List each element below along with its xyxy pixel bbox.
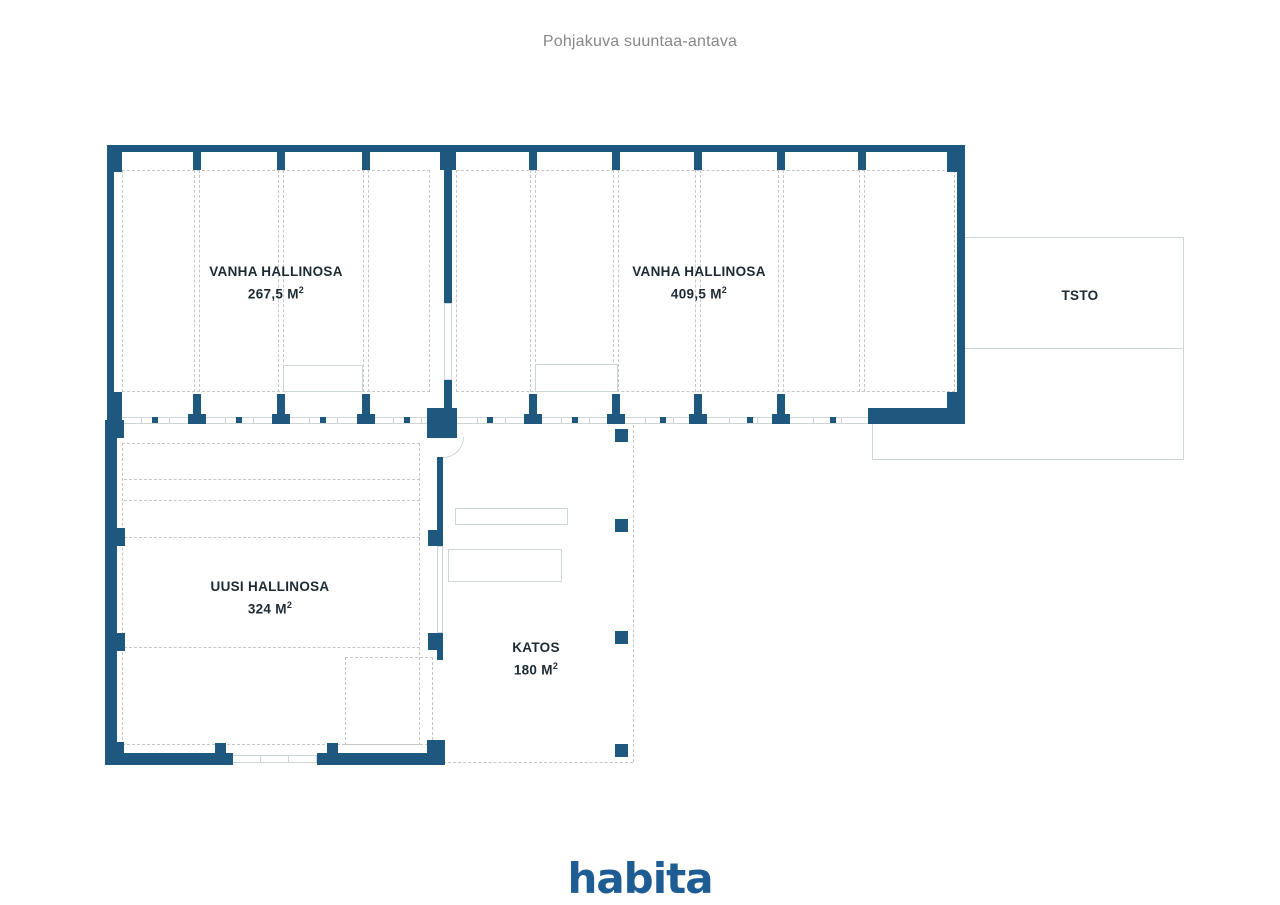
wall-segment [320,417,326,423]
wall-segment [487,417,493,423]
wall-segment [529,152,537,170]
wall-segment [272,414,290,424]
wall-segment [957,145,965,420]
wall-segment [437,650,443,660]
wall-segment [327,743,338,753]
room-area-sup: 2 [553,661,558,671]
wall-segment [615,631,628,644]
room-name: VANHA HALLINOSA [209,262,343,281]
room-area: 324 M2 [211,596,330,619]
window-opening [535,364,618,392]
column-grid-line [194,170,200,392]
wall-segment [437,457,443,530]
grid-dashed-line [124,479,420,480]
room-name: UUSI HALLINOSA [211,577,330,596]
room-label-vanha-hallinosa-2: VANHA HALLINOSA 409,5 M2 [632,262,766,304]
wall-segment [114,152,122,172]
annex-line [872,420,873,459]
room-label-tsto: TSTO [1062,286,1099,305]
wall-segment [317,753,443,765]
window-opening [448,549,562,582]
wall-segment [772,414,790,424]
wall-segment [444,152,452,303]
wall-segment [117,633,125,651]
floor-plan-page: Pohjakuva suuntaa-antava VANHA HALLINOSA… [0,0,1280,905]
wall-segment [357,414,375,424]
wall-segment [188,414,206,424]
room-name: TSTO [1062,286,1099,305]
wall-segment [193,152,201,170]
canopy-boundary-line [633,425,634,762]
wall-segment [362,152,370,170]
wall-segment [660,417,666,423]
column-grid-line [530,170,536,392]
window-opening [437,546,443,633]
room-area-value: 180 M [514,663,553,678]
wall-segment [607,414,625,424]
room-area-value: 409,5 M [671,287,722,302]
wall-segment [428,633,443,650]
column-grid-line [859,170,865,392]
wall-segment [117,528,125,546]
window-band [233,755,317,763]
column-grid-line [363,170,369,392]
wall-segment [107,145,965,152]
wall-segment [105,753,233,765]
wall-segment [689,414,707,424]
room-area-value: 324 M [248,602,287,617]
grid-dashed-line [443,762,633,763]
wall-segment [947,152,957,172]
wall-segment [747,417,753,423]
wall-segment [427,415,443,433]
wall-segment [440,152,456,170]
page-title: Pohjakuva suuntaa-antava [543,33,737,51]
room-name: VANHA HALLINOSA [632,262,766,281]
wall-segment [572,417,578,423]
wall-segment [615,744,628,757]
door-swing-arc [443,437,464,458]
floor-plan-drawing [0,0,1280,905]
column-grid-line [613,170,619,392]
wall-segment [615,519,628,532]
room-area: 180 M2 [512,657,560,680]
habita-logo: habita [567,854,712,903]
wall-segment [947,392,965,424]
annex-line [872,459,1184,460]
window-opening [283,365,363,392]
room-area: 409,5 M2 [632,281,766,304]
wall-segment [858,152,866,170]
wall-segment [427,740,445,765]
room-area-sup: 2 [287,600,292,610]
wall-segment [107,145,114,420]
annex-line [1183,237,1184,460]
wall-segment [404,417,410,423]
room-area-sup: 2 [722,285,727,295]
column-grid-line [778,170,784,392]
wall-segment [830,417,836,423]
grid-dashed-line [124,500,420,501]
wall-segment [236,417,242,423]
grid-dashed-rect [345,657,433,745]
room-area-sup: 2 [299,285,304,295]
window-opening [444,303,452,380]
room-label-uusi-hallinosa: UUSI HALLINOSA 324 M2 [211,577,330,619]
wall-segment [105,420,124,438]
wall-segment [105,420,117,765]
wall-segment [694,152,702,170]
wall-segment [152,417,158,423]
room-label-katos: KATOS 180 M2 [512,638,560,680]
room-label-vanha-hallinosa-1: VANHA HALLINOSA 267,5 M2 [209,262,343,304]
room-area: 267,5 M2 [209,281,343,304]
wall-segment [277,152,285,170]
annex-line [965,348,1183,349]
grid-dashed-line [124,537,420,538]
grid-dashed-line [124,647,420,648]
wall-segment [428,530,443,546]
wall-segment [612,152,620,170]
wall-segment [777,152,785,170]
room-name: KATOS [512,638,560,657]
room-area-value: 267,5 M [248,287,299,302]
wall-segment [615,429,628,442]
window-opening [455,508,568,525]
wall-segment [215,743,226,753]
wall-segment [524,414,542,424]
annex-line [965,237,1183,238]
